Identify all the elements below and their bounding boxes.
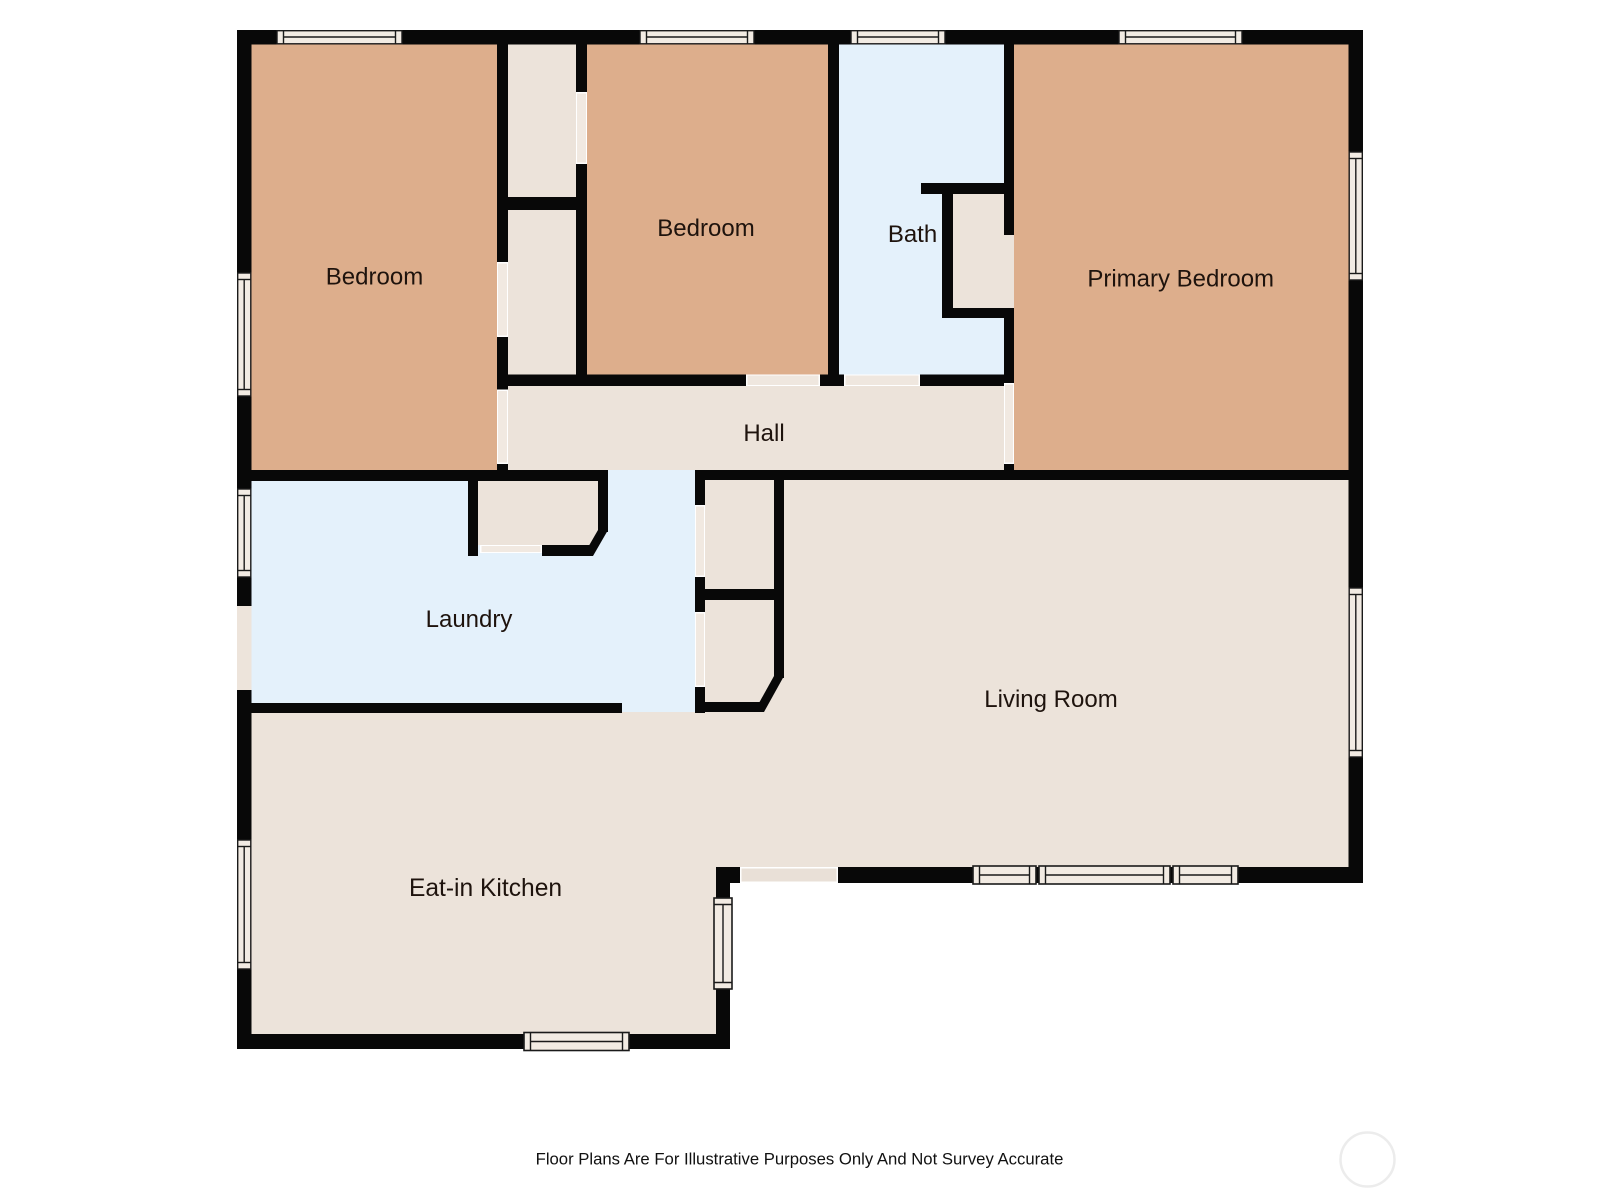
- svg-text:Eat-in Kitchen: Eat-in Kitchen: [409, 875, 562, 902]
- svg-text:Living Room: Living Room: [984, 686, 1117, 713]
- svg-text:Bedroom: Bedroom: [657, 215, 754, 242]
- svg-text:Primary Bedroom: Primary Bedroom: [1087, 266, 1274, 293]
- svg-text:Bedroom: Bedroom: [326, 264, 423, 291]
- svg-text:Bath: Bath: [888, 221, 937, 248]
- svg-text:Floor Plans Are For Illustrati: Floor Plans Are For Illustrative Purpose…: [536, 1150, 1064, 1169]
- svg-text:Laundry: Laundry: [426, 606, 513, 633]
- svg-text:Hall: Hall: [743, 420, 784, 447]
